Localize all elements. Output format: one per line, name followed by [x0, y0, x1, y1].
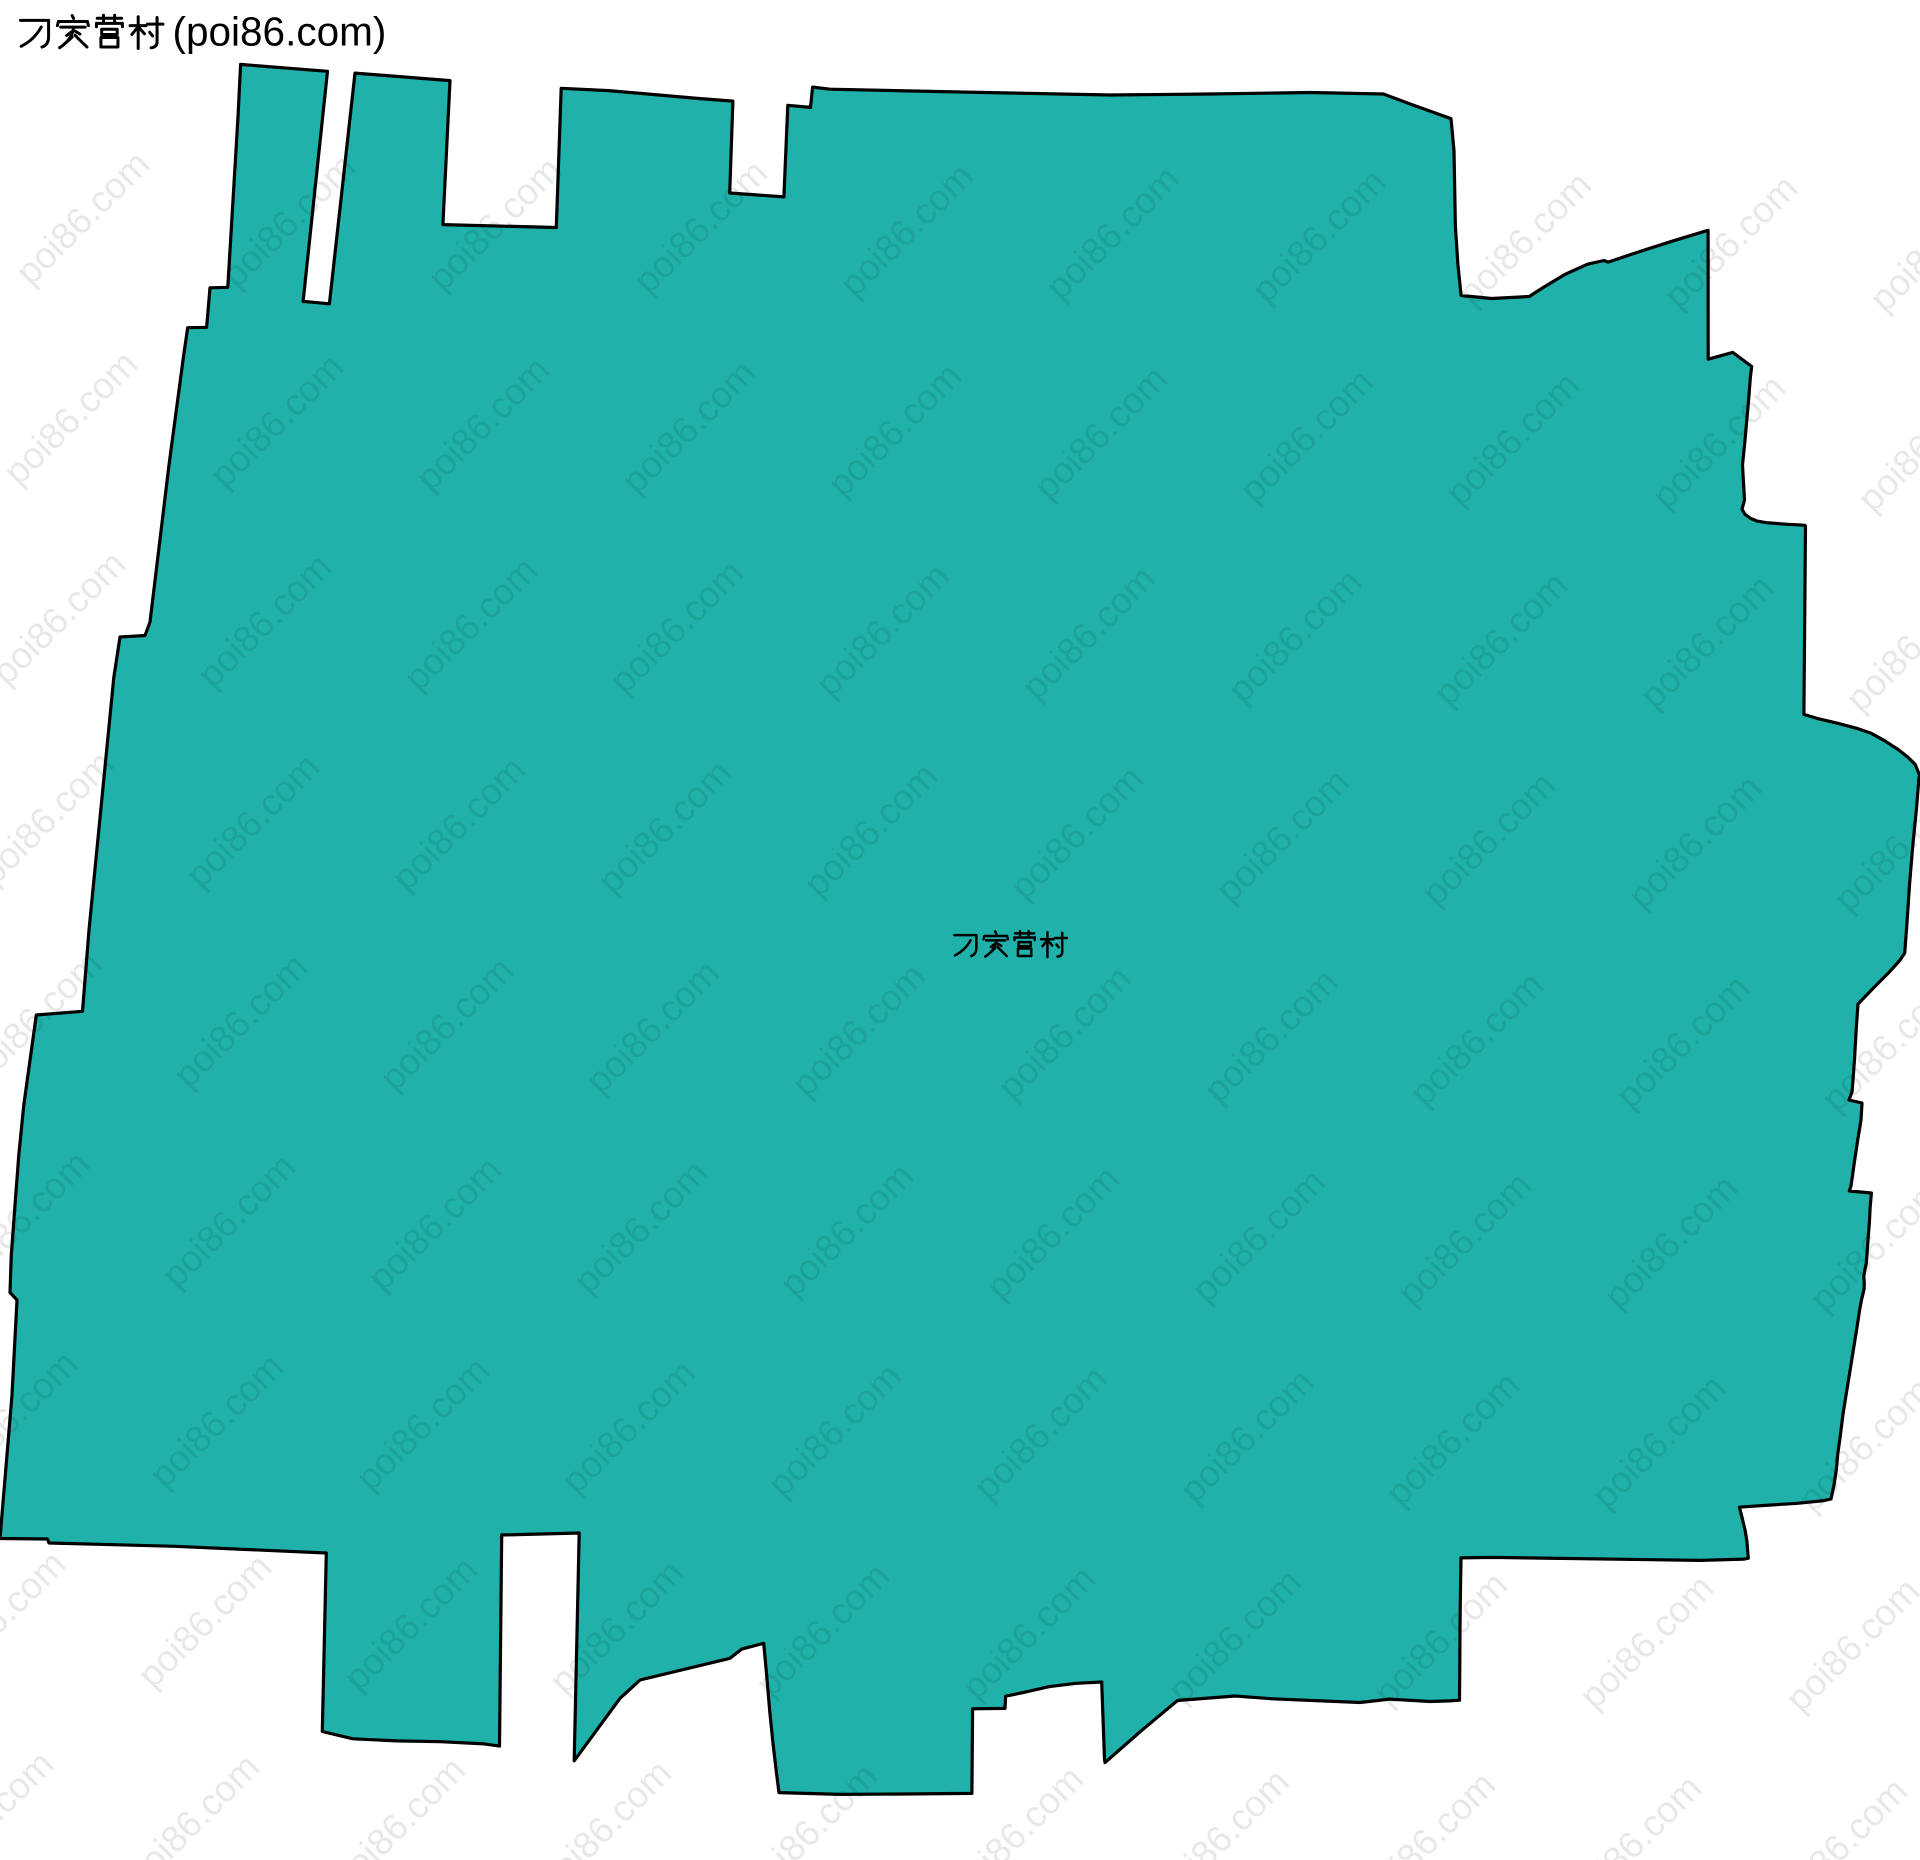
- svg-text:(poi86.com): (poi86.com): [173, 9, 387, 55]
